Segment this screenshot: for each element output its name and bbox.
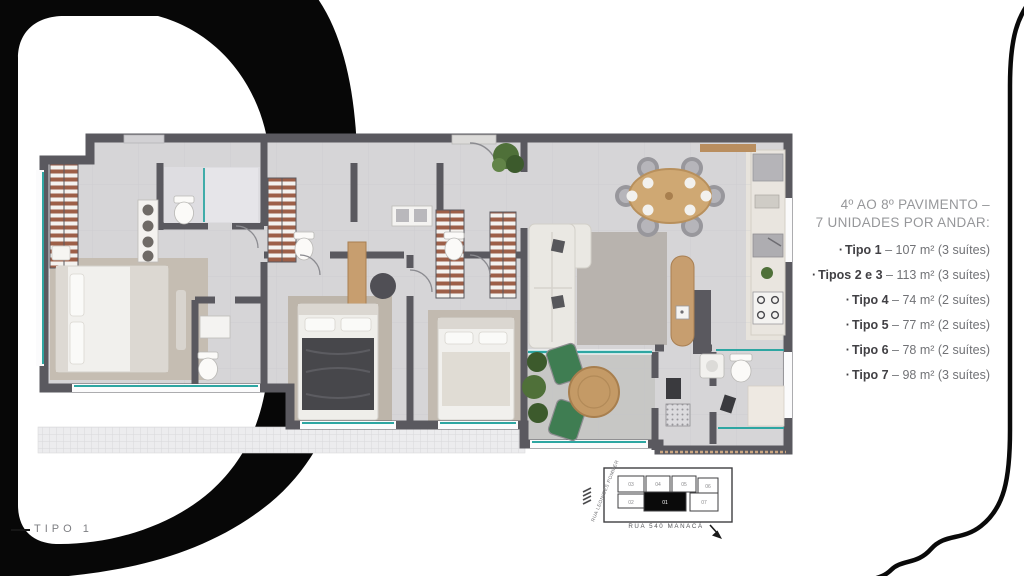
tipo-name: Tipo 7 — [852, 368, 889, 382]
tipo-detail: – 78 m² (2 suítes) — [892, 343, 990, 357]
round-rug — [370, 273, 396, 299]
legend-item: ·Tipos 2 e 3 – 113 m² (3 suítes) — [720, 268, 990, 282]
bench — [176, 290, 186, 350]
bullet: · — [839, 243, 843, 257]
bullet: · — [846, 318, 850, 332]
sidewalk-strip — [38, 427, 525, 453]
tipo-name: Tipo 1 — [845, 243, 882, 257]
bullet: · — [812, 268, 816, 282]
unit-label: 02 — [628, 500, 634, 506]
tipo-label-dash — [11, 529, 30, 531]
street-name-bottom: RUA 540 MANACÁ — [628, 523, 703, 530]
page: 03 04 05 06 02 01 07 RUA LEONIDES POMMER… — [0, 0, 1024, 576]
legend-item: ·Tipo 7 – 98 m² (3 suítes) — [720, 368, 990, 382]
legend-header: 4º AO 8º PAVIMENTO – 7 UNIDADES POR ANDA… — [720, 196, 990, 232]
nightstand — [52, 246, 70, 260]
railway-symbol — [583, 488, 591, 504]
master-bed — [56, 266, 168, 372]
terrace-table — [569, 367, 619, 417]
tipo-detail: – 113 m² (3 suítes) — [886, 268, 990, 282]
north-arrow — [710, 525, 722, 539]
island-wall — [693, 290, 711, 354]
tipo-name: Tipo 6 — [852, 343, 889, 357]
unit-label-highlighted: 01 — [662, 500, 668, 506]
bullet: · — [846, 293, 850, 307]
washer — [666, 378, 681, 399]
tipo-name: Tipos 2 e 3 — [818, 268, 882, 282]
legend-item: ·Tipo 4 – 74 m² (2 suítes) — [720, 293, 990, 307]
toilet — [174, 196, 194, 224]
desk — [348, 242, 366, 306]
tipo-detail: – 98 m² (3 suítes) — [892, 368, 990, 382]
suite2-bed — [298, 304, 378, 420]
unit-label: 06 — [705, 484, 711, 490]
bullet: · — [846, 343, 850, 357]
legend-header-line2: 7 UNIDADES POR ANDAR: — [720, 214, 990, 232]
tipo-detail: – 77 m² (2 suítes) — [892, 318, 990, 332]
legend-item: ·Tipo 1 – 107 m² (3 suítes) — [720, 243, 990, 257]
legend: 4º AO 8º PAVIMENTO – 7 UNIDADES POR ANDA… — [720, 196, 990, 382]
tipo-detail: – 107 m² (3 suítes) — [885, 243, 990, 257]
upper-cabinet — [700, 144, 756, 152]
unit-label: 03 — [628, 482, 634, 488]
tipo-name: Tipo 4 — [852, 293, 889, 307]
plan-type-label: TIPO 1 — [34, 523, 93, 535]
unit-label: 05 — [681, 482, 687, 488]
shower-floor — [666, 404, 690, 426]
legend-item: ·Tipo 6 – 78 m² (2 suítes) — [720, 343, 990, 357]
kitchen-island — [671, 256, 694, 346]
legend-item: ·Tipo 5 – 77 m² (2 suítes) — [720, 318, 990, 332]
tipo-name: Tipo 5 — [852, 318, 889, 332]
legend-header-line1: 4º AO 8º PAVIMENTO – — [720, 196, 990, 214]
unit-label: 07 — [701, 500, 707, 506]
keyplan: 03 04 05 06 02 01 07 RUA LEONIDES POMMER… — [583, 459, 732, 539]
suite3-bed — [438, 318, 514, 420]
fridge — [753, 154, 783, 181]
apartment-plan — [36, 135, 792, 452]
unit-label: 04 — [655, 482, 661, 488]
bullet: · — [846, 368, 850, 382]
tipo-detail: – 74 m² (2 suítes) — [892, 293, 990, 307]
wall-niche — [124, 135, 164, 143]
